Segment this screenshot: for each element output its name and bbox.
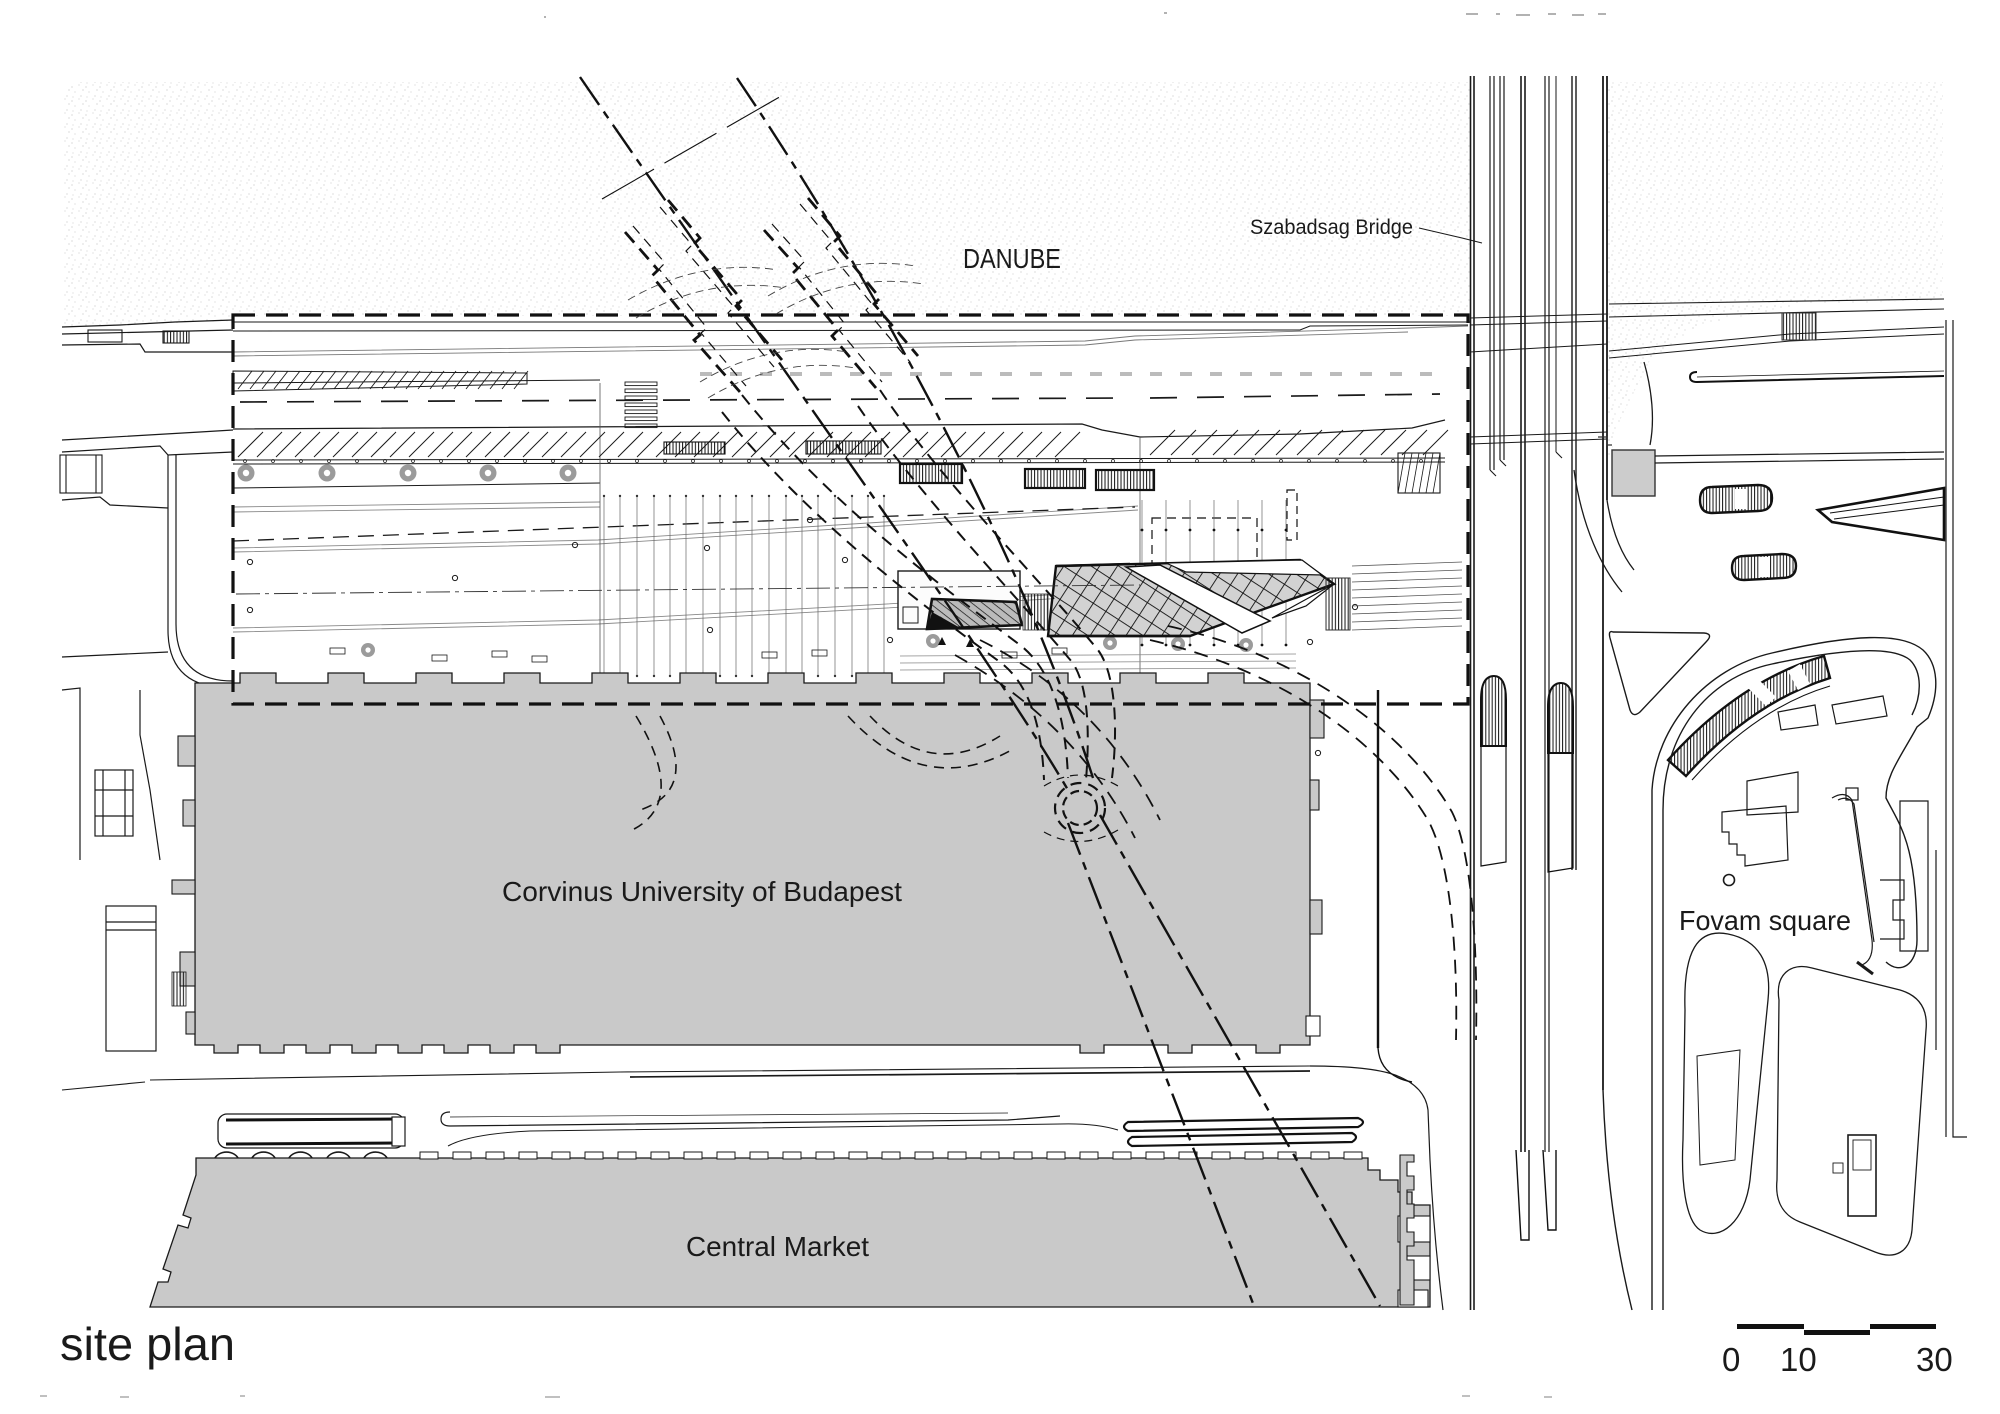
svg-text:DANUBE: DANUBE	[963, 243, 1061, 274]
svg-text:Corvinus University of Budapes: Corvinus University of Budapest	[502, 876, 902, 907]
svg-text:Szabadsag Bridge: Szabadsag Bridge	[1250, 216, 1413, 239]
svg-text:Fovam square: Fovam square	[1679, 905, 1851, 936]
svg-text:0: 0	[1722, 1341, 1740, 1378]
svg-text:30: 30	[1916, 1341, 1953, 1378]
svg-text:Central Market: Central Market	[686, 1231, 869, 1262]
svg-text:site plan: site plan	[60, 1318, 235, 1370]
svg-text:10: 10	[1780, 1341, 1817, 1378]
